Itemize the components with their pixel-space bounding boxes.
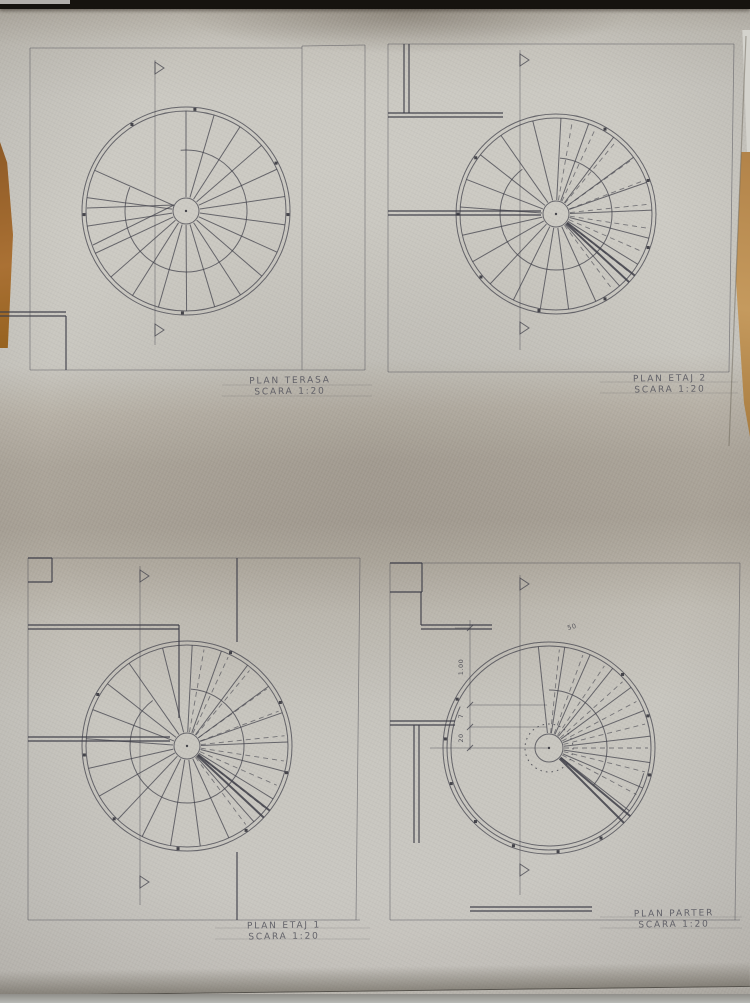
dimension-label: 7	[457, 714, 465, 719]
plan-terasa-title: PLAN TERASA	[228, 375, 352, 387]
plan-terasa-scale: SCARA 1:20	[228, 386, 352, 398]
plan-etaj2-title: PLAN ETAJ 2	[608, 373, 732, 385]
plan-parter-drawing	[390, 563, 740, 920]
plan-parter-title: PLAN PARTER	[612, 908, 736, 920]
dimension-label: 20	[457, 733, 465, 742]
plan-etaj-1-drawing	[28, 558, 360, 920]
stair-plans-linework	[0, 0, 750, 1003]
plan-etaj-2-drawing	[388, 44, 734, 372]
plan-terasa-drawing	[0, 45, 365, 370]
plan-parter-scale: SCARA 1:20	[612, 919, 736, 931]
photo-of-staircase-drawings: PLAN TERASA SCARA 1:20 PLAN ETAJ 2 SCARA…	[0, 0, 750, 1003]
plan-etaj2-scale: SCARA 1:20	[608, 384, 732, 396]
dimension-label: 1.00	[457, 659, 465, 675]
plan-etaj1-scale: SCARA 1:20	[222, 931, 346, 943]
plan-etaj1-title: PLAN ETAJ 1	[222, 920, 346, 932]
